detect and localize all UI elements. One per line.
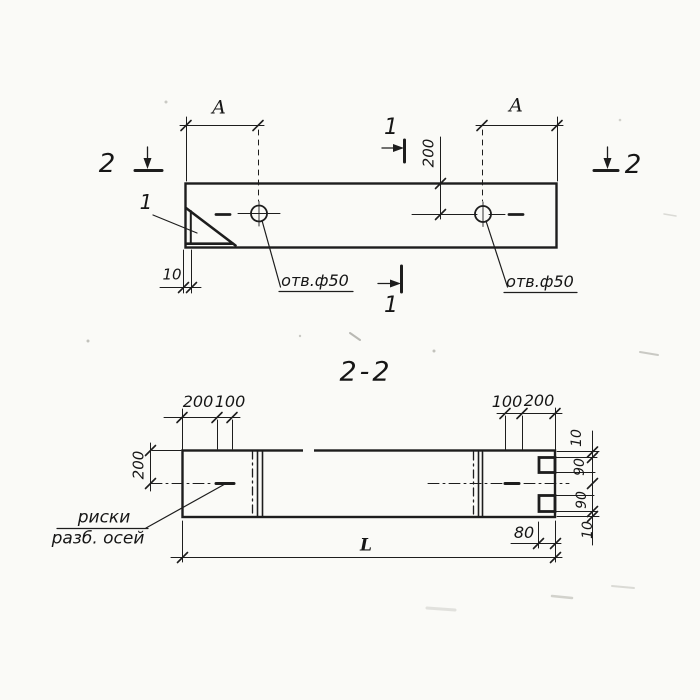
plan-dim-200-label: 200 xyxy=(422,139,437,168)
section-outline xyxy=(183,447,556,518)
plan-section-2-right-label: 2 xyxy=(625,152,642,178)
section-dim-100-top-right-label: 100 xyxy=(492,394,523,410)
plan-section-mark-2 xyxy=(135,147,618,171)
plan-dim-a-left-label: A xyxy=(212,99,226,118)
section-dim-length-label: L xyxy=(360,538,372,555)
section-dim-90-top-label: 90 xyxy=(573,458,587,476)
section-dims-top-right xyxy=(497,408,562,451)
plan-section-mark-1 xyxy=(378,140,405,292)
plan-detail-1-label: 1 xyxy=(140,192,153,212)
plan-outline xyxy=(186,184,557,248)
section-axis-label-line2: разб. осей xyxy=(52,531,145,548)
section-dim-90-bottom-label: 90 xyxy=(575,491,589,509)
section-dim-10-bottom-label: 10 xyxy=(581,521,595,539)
plan-hole-callout-left: отв.ф50 xyxy=(281,273,349,289)
plan-dim-a-left xyxy=(180,117,264,201)
section-dim-100-top-left-label: 100 xyxy=(215,394,246,410)
plan-dim-a-right-label: A xyxy=(509,97,523,116)
plan-hole-callout-right: отв.ф50 xyxy=(506,274,574,290)
plan-dim-10-label: 10 xyxy=(162,268,181,283)
section-dim-height-label: 200 xyxy=(132,451,147,480)
section-notches xyxy=(539,458,555,512)
section-dim-200-top-right-label: 200 xyxy=(524,393,555,409)
section-dim-200-top-left-label: 200 xyxy=(183,394,214,410)
section-dim-80-label: 80 xyxy=(514,525,534,541)
drawing-linework xyxy=(0,0,700,700)
section-axis-label-line1: риски xyxy=(78,510,131,527)
plan-view-linework xyxy=(135,117,618,293)
section-dims-top-left xyxy=(164,409,240,450)
plan-section-1-bottom-label: 1 xyxy=(384,295,398,317)
section-dim-10-top-label: 10 xyxy=(570,429,584,447)
plan-section-1-top-label: 1 xyxy=(384,117,398,139)
section-joint-lines xyxy=(253,451,483,516)
drawing-sheet: A A 1 1 2 2 200 10 1 отв.ф50 отв.ф50 2-2… xyxy=(0,0,700,700)
plan-section-2-left-label: 2 xyxy=(99,151,116,177)
section-title: 2-2 xyxy=(339,359,392,386)
plan-dim-a-right xyxy=(476,117,563,201)
